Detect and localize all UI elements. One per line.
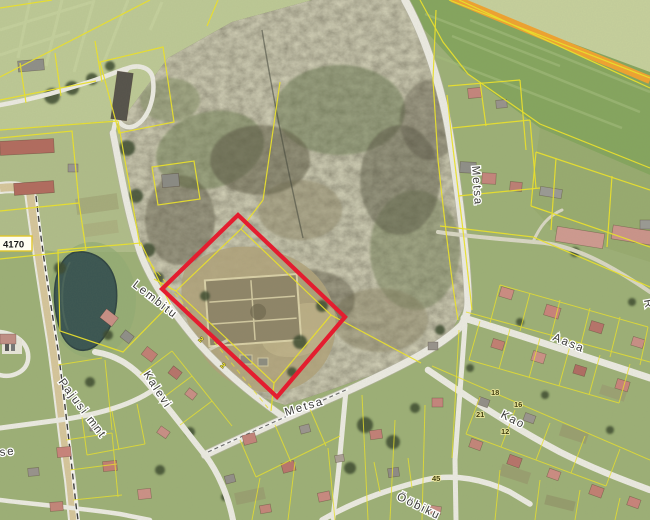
map-viewport[interactable]: Metsa Metsa Aasa Kao Ööbiku Kalevi Lembi…: [0, 0, 650, 520]
parcel-number: 16: [514, 400, 522, 409]
parcel-number: 21: [476, 410, 484, 419]
parcel-number: 18: [491, 388, 499, 397]
parcel-number: 45: [432, 474, 440, 483]
route-badge-number: 4170: [3, 240, 24, 251]
parcel-number: 12: [501, 427, 509, 436]
aerial-map-canvas[interactable]: Metsa Metsa Aasa Kao Ööbiku Kalevi Lembi…: [0, 0, 650, 520]
road-label-partial-left: se: [0, 445, 16, 459]
photo-grain: [0, 0, 650, 520]
route-badge: 4170: [0, 236, 32, 251]
